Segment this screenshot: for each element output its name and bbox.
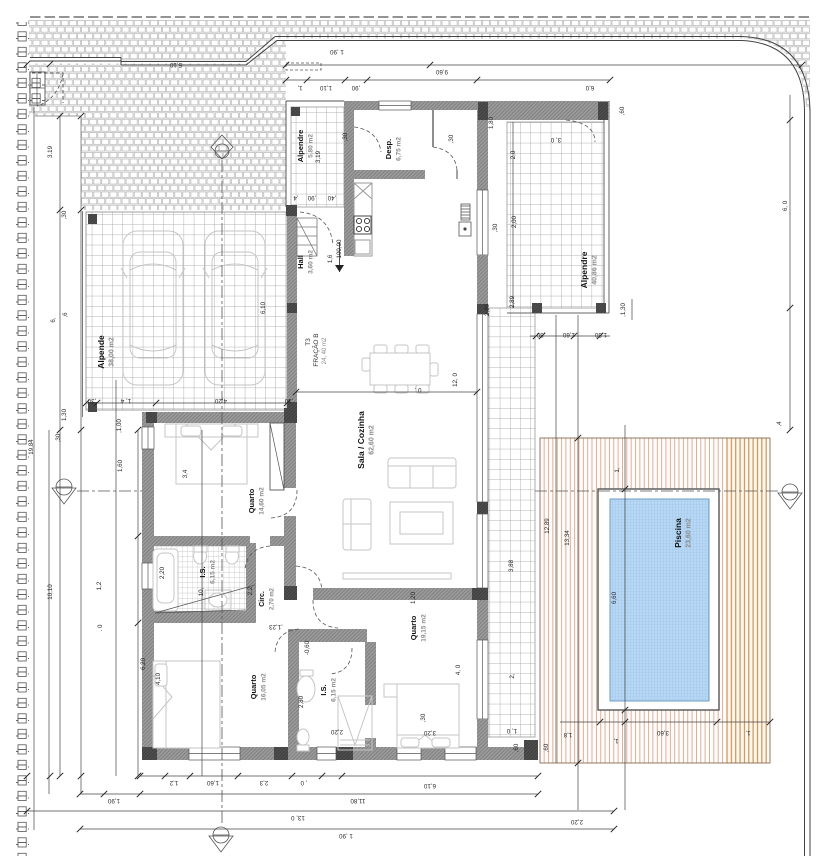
svg-text:62,60 m2: 62,60 m2 (369, 425, 376, 455)
svg-text:3.19: 3.19 (47, 145, 54, 158)
svg-text:,30: ,30 (342, 132, 349, 141)
svg-text:1,8: 1,8 (563, 731, 572, 738)
svg-text:11,80: 11,80 (350, 797, 366, 804)
svg-text:1,2: 1,2 (96, 581, 103, 590)
svg-text:2,0: 2,0 (510, 150, 517, 159)
svg-text:2,20: 2,20 (159, 566, 166, 579)
svg-text:2,20: 2,20 (570, 818, 583, 825)
svg-text:,4: ,4 (293, 194, 299, 201)
svg-text:Alpendre: Alpendre (579, 251, 589, 288)
svg-text:19,15 m2: 19,15 m2 (421, 614, 428, 642)
svg-text:Quarto: Quarto (409, 615, 418, 640)
svg-text:6,15 m2: 6,15 m2 (331, 678, 338, 702)
svg-text:6,20: 6,20 (140, 657, 147, 670)
svg-text:1,2: 1,2 (169, 779, 178, 786)
svg-text:,30: ,30 (448, 134, 455, 143)
svg-text:Quarto: Quarto (249, 674, 258, 699)
svg-text:,60: ,60 (513, 743, 520, 752)
svg-text:1, 4: 1, 4 (120, 397, 131, 404)
svg-text:2,2: 2,2 (247, 586, 254, 595)
svg-text:Desp.: Desp. (384, 139, 393, 159)
svg-text:1,: 1, (614, 467, 621, 472)
svg-text:4,10: 4,10 (155, 672, 162, 685)
svg-text:9,60: 9,60 (435, 68, 448, 75)
svg-text:,4: ,4 (776, 421, 783, 427)
svg-text:1,: 1, (613, 737, 618, 744)
svg-text:,30: ,30 (284, 397, 293, 404)
svg-text:1 ,90: 1 ,90 (339, 832, 353, 839)
svg-text:,1,00: ,1,00 (116, 419, 123, 433)
svg-text:,60: ,60 (619, 106, 626, 115)
svg-text:5,10: 5,10 (169, 61, 182, 68)
svg-text:3,60: 3,60 (656, 729, 669, 736)
svg-text:Sala / Cozinha: Sala / Cozinha (356, 411, 366, 469)
svg-text:. 0: . 0 (97, 624, 104, 631)
svg-text:23,60 m2: 23,60 m2 (686, 518, 693, 548)
svg-text:,30: ,30 (87, 397, 96, 404)
svg-text:, 0: , 0 (300, 779, 307, 786)
svg-text:I.S.: I.S. (198, 566, 207, 577)
svg-text:3, 0: 3, 0 (550, 136, 561, 143)
svg-text:10,10: 10,10 (47, 584, 54, 600)
svg-text:13, 0: 13, 0 (291, 814, 305, 821)
svg-text:6,10: 6,10 (423, 782, 436, 789)
svg-text:6,60: 6,60 (611, 591, 618, 604)
svg-text:,90: ,90 (307, 194, 316, 201)
svg-text:1,80: 1,80 (488, 116, 495, 129)
svg-text:Quarto: Quarto (247, 488, 256, 513)
svg-text:14,60 m2: 14,60 m2 (259, 487, 266, 515)
svg-text:2,: 2, (509, 673, 516, 678)
svg-text:1,20: 1,20 (410, 591, 417, 604)
svg-text:2,20: 2,20 (330, 728, 343, 735)
svg-text:5,80 m2: 5,80 m2 (308, 134, 315, 158)
svg-text:3,60 m2: 3,60 m2 (308, 250, 315, 274)
svg-text:1,30: 1,30 (61, 408, 68, 421)
svg-text:,6: ,6 (62, 312, 69, 318)
svg-text:1,10: 1,10 (319, 84, 332, 91)
svg-text:3,20: 3,20 (423, 729, 436, 736)
svg-text:2,3: 2,3 (259, 779, 268, 786)
svg-text:4, 0: 4, 0 (455, 664, 462, 675)
svg-text:40,86 m2: 40,86 m2 (592, 255, 599, 285)
svg-text:1,30: 1,30 (594, 331, 607, 338)
svg-text:,60: ,60 (543, 743, 550, 752)
svg-text:2,89: 2,89 (484, 303, 491, 316)
svg-text:4,20: 4,20 (214, 397, 227, 404)
svg-text:6,15 m2: 6,15 m2 (210, 560, 217, 584)
svg-text:FRAÇÃO B: FRAÇÃO B (311, 333, 320, 366)
svg-text:6,10: 6,10 (260, 301, 267, 314)
svg-text:0 .: 0 . (414, 386, 421, 393)
svg-text:Piscina: Piscina (673, 518, 683, 548)
svg-text:1,: 1, (297, 84, 302, 91)
svg-text:1,60: 1,60 (117, 459, 124, 472)
svg-text:2,89: 2,89 (509, 295, 516, 308)
svg-text:3,88: 3,88 (508, 559, 515, 572)
svg-text:3,4: 3,4 (182, 469, 189, 478)
svg-text:,30: ,30 (420, 713, 427, 722)
svg-text:6,75 m2: 6,75 m2 (396, 137, 403, 161)
svg-text:Hall: Hall (296, 255, 305, 269)
svg-text:,30: ,30 (536, 331, 545, 338)
svg-text:1 ,90: 1 ,90 (330, 48, 344, 55)
svg-text:1,90: 1,90 (107, 797, 120, 804)
svg-text:,1,23: ,1,23 (269, 623, 283, 630)
svg-text:6,0: 6,0 (585, 84, 594, 91)
svg-text:,30: ,30 (61, 210, 68, 219)
svg-text:,30: ,30 (55, 433, 62, 442)
svg-text:24, 40 m2: 24, 40 m2 (322, 337, 328, 364)
svg-text:Alpendre: Alpendre (296, 130, 305, 163)
svg-text:12,89: 12,89 (544, 518, 551, 534)
svg-text:,1,30: ,1,30 (620, 303, 627, 317)
svg-text:1.: 1. (745, 729, 750, 736)
svg-text:1,60: 1,60 (206, 779, 219, 786)
svg-text:10,: 10, (198, 587, 205, 596)
svg-text:3,19: 3,19 (315, 150, 322, 163)
svg-text:Circ.: Circ. (259, 591, 266, 607)
svg-text:,30: ,30 (492, 223, 499, 232)
svg-text:1,6: 1,6 (327, 254, 334, 263)
svg-text:1,60: 1,60 (562, 331, 575, 338)
svg-text:I.S.: I.S. (319, 684, 328, 695)
svg-text:2,80: 2,80 (298, 695, 305, 708)
svg-text:T3: T3 (305, 338, 312, 346)
svg-text:1, 0: 1, 0 (506, 727, 517, 734)
svg-text:13,34: 13,34 (564, 530, 571, 546)
svg-text:19,84: 19,84 (28, 439, 35, 455)
svg-text:2,70 m2: 2,70 m2 (270, 587, 276, 610)
svg-text:Alpende: Alpende (96, 335, 106, 369)
svg-text:,40: ,40 (327, 194, 336, 201)
svg-text:2,00: 2,00 (511, 215, 518, 228)
svg-text:38,00 m2: 38,00 m2 (109, 337, 116, 367)
svg-text:12, 0: 12, 0 (452, 373, 459, 387)
svg-text:6,: 6, (50, 317, 57, 322)
svg-text:6, 0: 6, 0 (782, 200, 789, 211)
svg-text:,90: ,90 (351, 84, 360, 91)
svg-text:16,05 m2: 16,05 m2 (261, 673, 268, 701)
svg-text:-0,60: -0,60 (304, 640, 311, 655)
